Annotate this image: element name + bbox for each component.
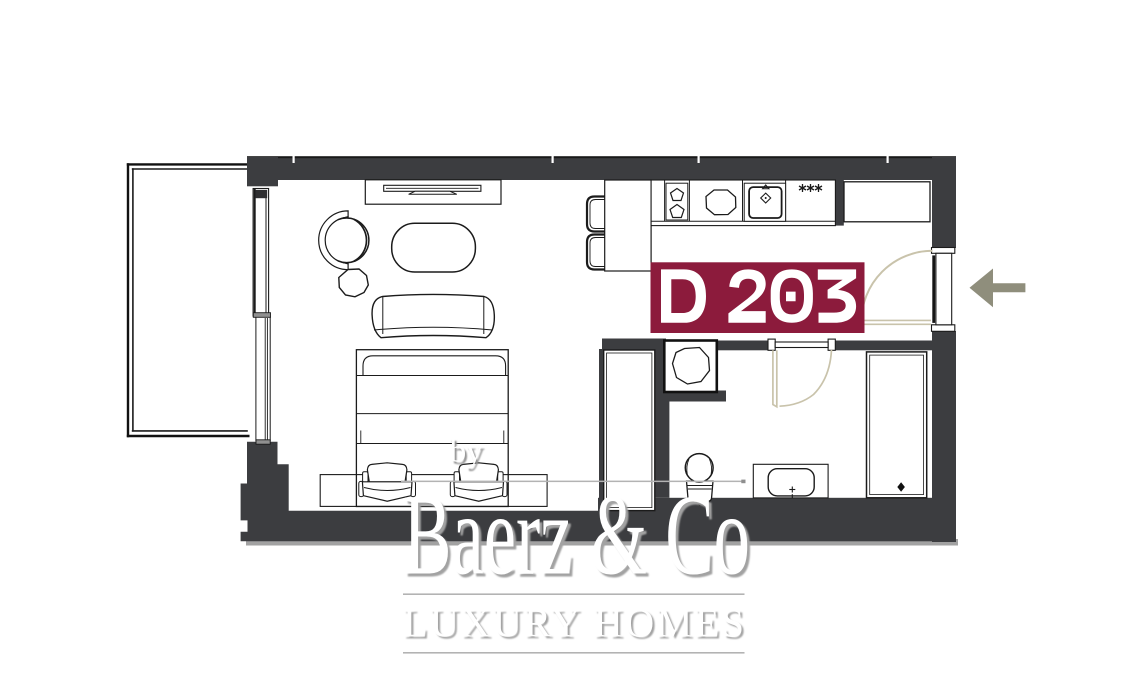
svg-text:Baerz & Co: Baerz & Co <box>403 472 750 599</box>
svg-text:by: by <box>450 434 484 470</box>
